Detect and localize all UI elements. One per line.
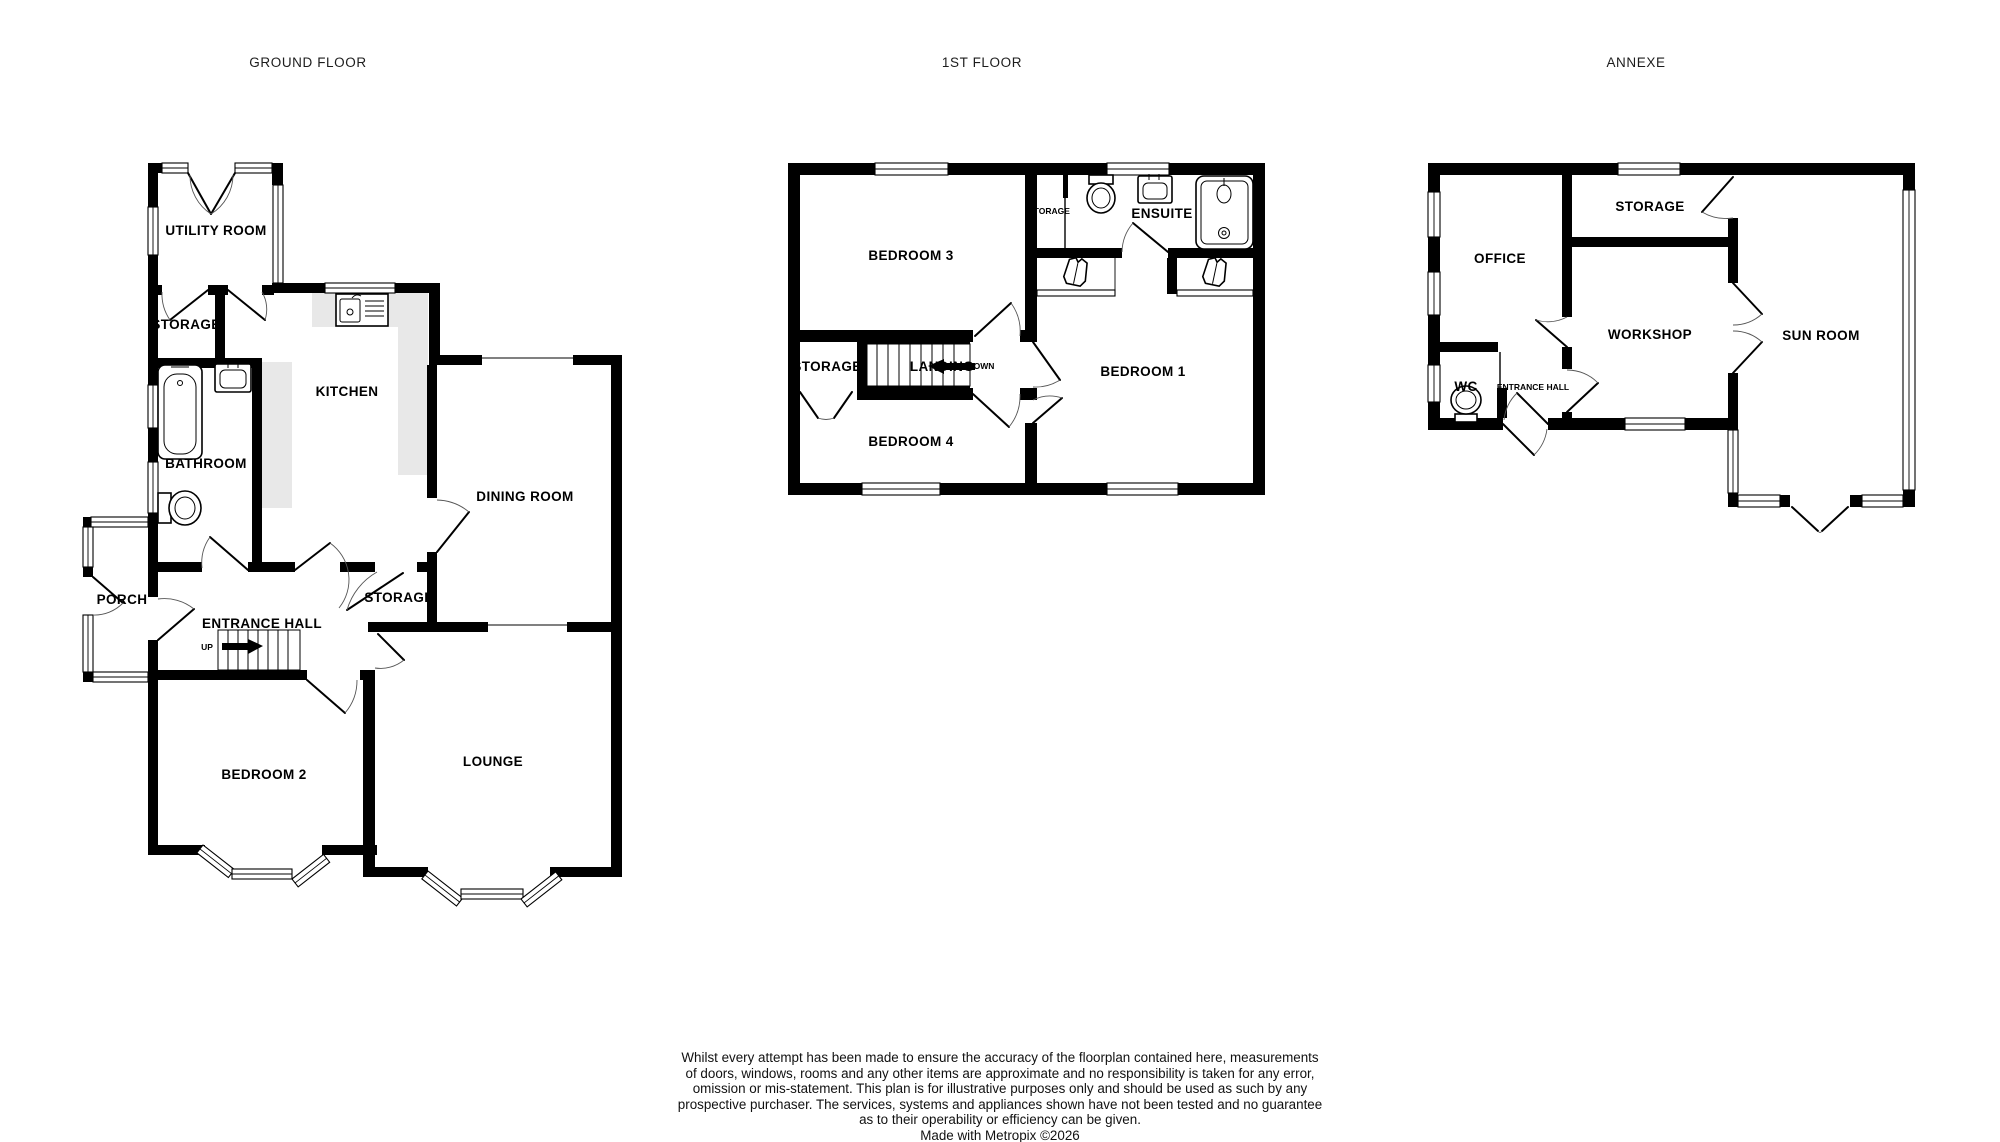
first-floor-plan: 1ST FLOOR [788, 55, 1265, 495]
room-label-ensuite: ENSUITE [1131, 206, 1192, 221]
wardrobe-shirt-icon [1202, 256, 1229, 287]
disclaimer-line: of doors, windows, rooms and any other i… [0, 1066, 2000, 1082]
stairs-up-label: UP [201, 642, 213, 652]
annexe-doors [1500, 177, 1848, 533]
room-label-wc: WC [1454, 379, 1477, 394]
first-floor-doors [800, 198, 1168, 427]
annexe-plan: ANNEXE [1428, 55, 1915, 533]
room-label-porch: PORCH [97, 592, 148, 607]
disclaimer-line: omission or mis-statement. This plan is … [0, 1081, 2000, 1097]
shower-icon [1196, 176, 1253, 249]
room-label-kitchen: KITCHEN [316, 384, 379, 399]
annexe-title: ANNEXE [1606, 55, 1665, 70]
room-label-office: OFFICE [1474, 251, 1526, 266]
room-label-bedroom3: BEDROOM 3 [868, 248, 953, 263]
disclaimer-brand-line: Made with Metropix ©2026 [0, 1128, 2000, 1142]
toilet-icon [158, 491, 201, 525]
ground-floor-title: GROUND FLOOR [249, 55, 366, 70]
first-floor-title: 1ST FLOOR [942, 55, 1022, 70]
room-label-storage-annexe: STORAGE [1615, 199, 1684, 214]
ground-floor-plan: GROUND FLOOR [83, 55, 622, 907]
room-label-storage-upper: STORAGE [151, 317, 220, 332]
room-label-bathroom: BATHROOM [165, 456, 247, 471]
annexe-labels: OFFICE STORAGE WORKSHOP SUN ROOM WC ENTR… [1454, 199, 1859, 394]
room-label-entrance-annexe: ENTRANCE HALL [1497, 382, 1569, 392]
room-label-entrance-hall: ENTRANCE HALL [202, 616, 322, 631]
room-label-storage-ff: STORAGE [792, 359, 861, 374]
room-label-lounge: LOUNGE [463, 754, 523, 769]
floorplan-canvas: GROUND FLOOR [0, 0, 2000, 1142]
wardrobe-shirt-icon [1063, 256, 1090, 287]
room-label-workshop: WORKSHOP [1608, 327, 1692, 342]
disclaimer-line: prospective purchaser. The services, sys… [0, 1097, 2000, 1113]
room-label-bedroom2: BEDROOM 2 [221, 767, 306, 782]
disclaimer-text: Whilst every attempt has been made to en… [0, 1050, 2000, 1142]
room-label-bedroom4: BEDROOM 4 [868, 434, 953, 449]
bathroom-sink-icon [215, 362, 251, 392]
ground-floor-stairs: UP [201, 630, 300, 670]
wardrobes [1037, 256, 1253, 296]
kitchen-sink-icon [336, 294, 388, 326]
room-label-bedroom1: BEDROOM 1 [1100, 364, 1185, 379]
floorplan-page: GROUND FLOOR [0, 0, 2000, 1142]
room-label-utility: UTILITY ROOM [165, 223, 266, 238]
first-floor-walls [788, 163, 1265, 495]
room-label-dining: DINING ROOM [476, 489, 573, 504]
disclaimer-line: as to their operability or efficiency ca… [0, 1112, 2000, 1128]
room-label-storage-closet: STORAGE [1028, 206, 1070, 216]
room-label-sunroom: SUN ROOM [1782, 328, 1859, 343]
disclaimer-line: Whilst every attempt has been made to en… [0, 1050, 2000, 1066]
toilet-icon [1087, 175, 1115, 213]
bathtub-icon [158, 365, 202, 459]
room-label-storage-hall: STORAGE [364, 590, 433, 605]
ensuite-sink-icon [1138, 174, 1172, 203]
